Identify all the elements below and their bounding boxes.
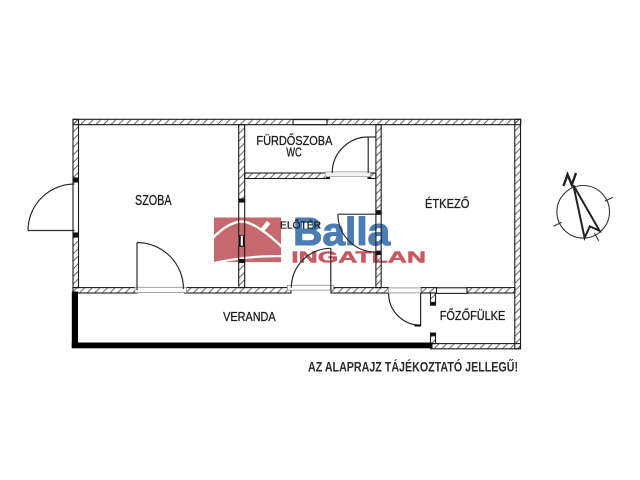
svg-text:SZOBA: SZOBA bbox=[135, 192, 172, 209]
svg-text:FŐZŐFÜLKE: FŐZŐFÜLKE bbox=[440, 308, 506, 323]
svg-text:ELŐTÉR: ELŐTÉR bbox=[280, 218, 321, 232]
svg-text:WC: WC bbox=[286, 146, 302, 160]
svg-text:AZ ALAPRAJZ TÁJÉKOZTATÓ JELLEG: AZ ALAPRAJZ TÁJÉKOZTATÓ JELLEGŰ! bbox=[308, 360, 518, 375]
svg-text:INGATLAN: INGATLAN bbox=[291, 250, 426, 267]
svg-text:VERANDA: VERANDA bbox=[223, 310, 276, 324]
svg-text:ÉTKEZŐ: ÉTKEZŐ bbox=[425, 196, 470, 211]
